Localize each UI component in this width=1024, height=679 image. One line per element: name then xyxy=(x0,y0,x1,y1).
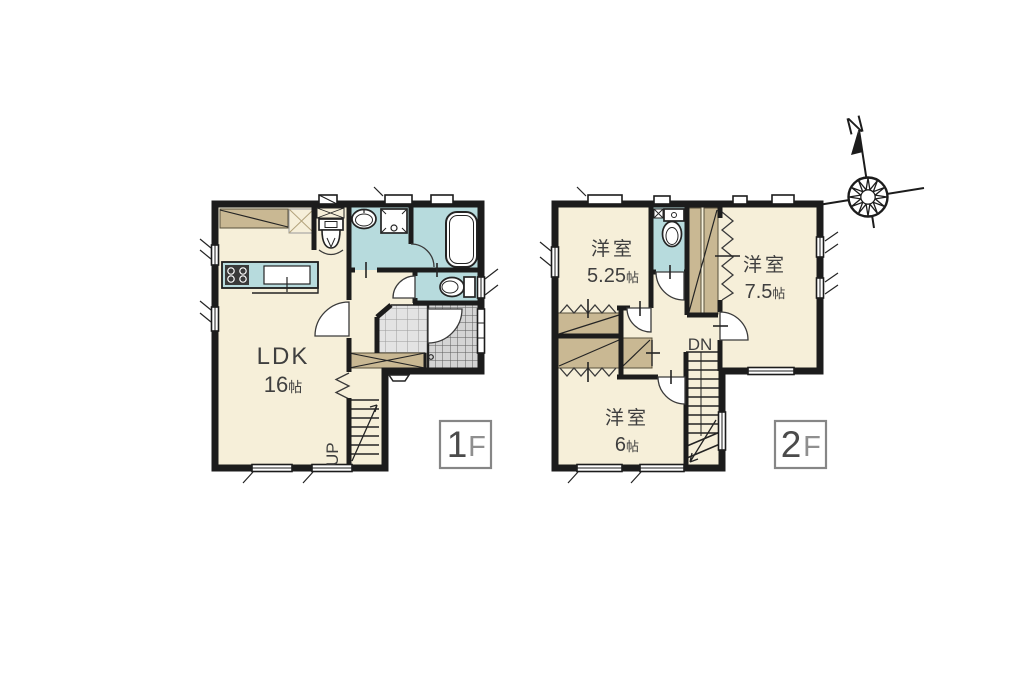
badge-1f-suffix: F xyxy=(468,431,486,463)
badge-1f-number: 1 xyxy=(447,424,468,465)
badge-2f-number: 2 xyxy=(781,424,802,465)
bathtub-icon xyxy=(446,212,477,267)
toilet-1f-right xyxy=(440,277,475,297)
room-75-label: 洋室 xyxy=(743,254,787,276)
stairs-down-label: DN xyxy=(688,335,713,354)
refrigerator-space xyxy=(289,209,314,233)
washbasin-icon xyxy=(352,209,376,229)
shoe-cabinet xyxy=(349,353,425,368)
room-6-label: 洋室 xyxy=(605,407,649,429)
room-525-label: 洋室 xyxy=(591,238,635,260)
floor-plan-page: LDK 16帖 UP xyxy=(0,0,1024,679)
room-ldk-label: LDK xyxy=(257,343,310,370)
floor-badge-1f: 1 F xyxy=(440,421,491,468)
floor-badge-2f: 2 F xyxy=(775,421,826,468)
porch-step xyxy=(389,375,409,381)
badge-2f-suffix: F xyxy=(803,431,821,463)
front-door xyxy=(478,309,485,353)
stairs-up-label: UP xyxy=(323,442,342,466)
stove-icon xyxy=(225,265,249,285)
kitchen-counter xyxy=(222,262,318,293)
compass-north-label: N xyxy=(844,111,867,141)
washing-machine-icon xyxy=(381,209,407,233)
floor-plan-canvas: LDK 16帖 UP xyxy=(0,0,1024,679)
kitchen-cabinet xyxy=(220,209,288,228)
compass-icon: N xyxy=(812,111,924,228)
